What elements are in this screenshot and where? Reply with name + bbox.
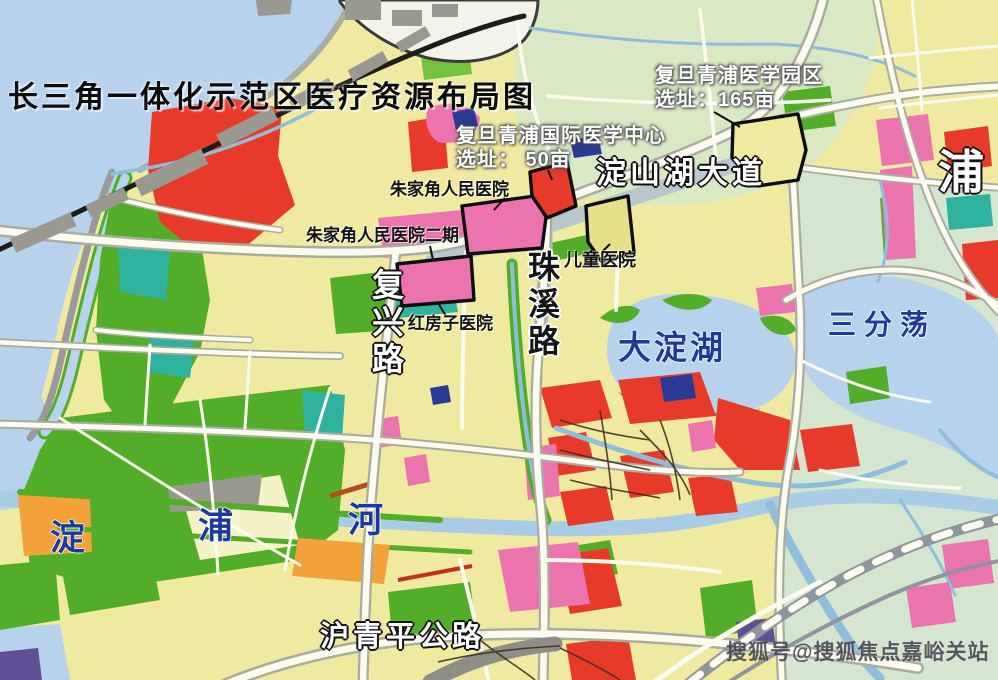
fudan-park-name: 复旦青浦医学园区	[655, 64, 823, 88]
fudan-center-name: 复旦青浦国际医学中心	[456, 124, 666, 148]
planning-map: 长三角一体化示范区医疗资源布局图 复旦青浦医学园区 选址：165亩 复旦青浦国际…	[0, 0, 998, 680]
label-dadian-lake: 大淀湖	[618, 328, 726, 368]
fudan-park-area: 选址：165亩	[655, 88, 823, 112]
site-zhujiajiao-hospital-phase2	[397, 256, 474, 306]
label-pu-district: 浦	[938, 144, 984, 200]
label-dianshanhu-avenue: 淀山湖大道	[596, 156, 766, 193]
label-redhouse-hospital: 红房子医院	[408, 314, 493, 335]
label-fuxing-road: 复兴路	[366, 268, 405, 379]
map-title: 长三角一体化示范区医疗资源布局图	[8, 80, 536, 117]
label-huqingping-highway: 沪青平公路	[320, 620, 485, 655]
label-sanfendang: 三分荡	[828, 308, 936, 342]
label-dianpu-river-char1: 淀	[50, 518, 85, 561]
label-fudan-medical-park: 复旦青浦医学园区 选址：165亩	[655, 64, 823, 113]
label-dianpu-river-char2: 浦	[198, 506, 233, 549]
watermark-sohu: 搜狐号@搜狐焦点嘉峪关站	[726, 640, 989, 666]
label-dianpu-river-char3: 河	[348, 500, 383, 543]
label-zhuxi-road: 珠溪路	[522, 250, 561, 361]
label-children-hospital: 儿童医院	[564, 250, 636, 272]
label-zhujiajiao-hospital: 朱家角人民医院	[390, 180, 509, 201]
label-zhujiajiao-hospital-phase2: 朱家角人民医院二期	[306, 226, 459, 247]
